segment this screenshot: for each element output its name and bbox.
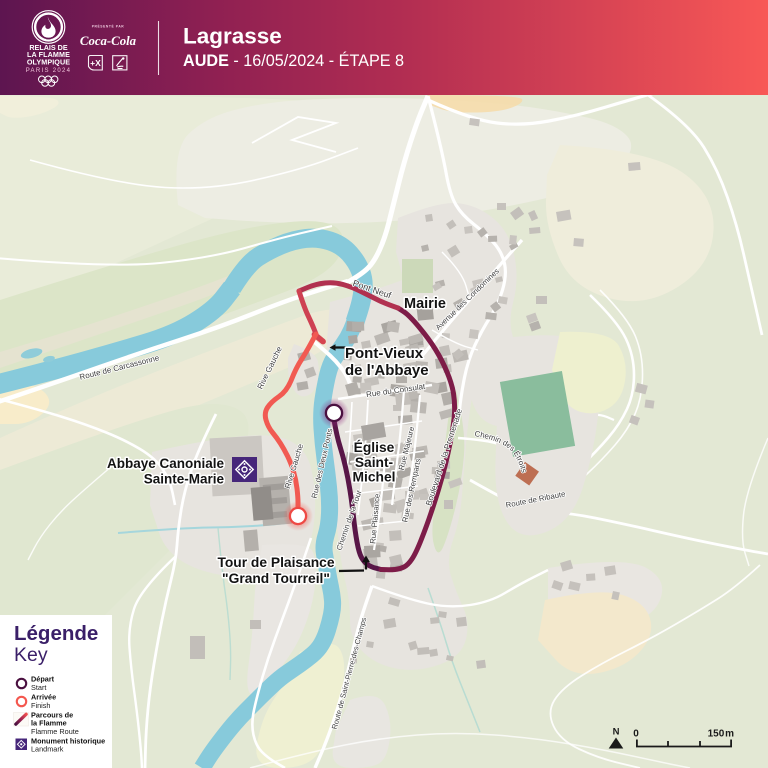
svg-text:0: 0: [633, 729, 639, 740]
svg-text:Mairie: Mairie: [404, 296, 446, 312]
svg-text:150 m: 150 m: [708, 729, 735, 740]
svg-text:+X: +X: [90, 58, 101, 68]
svg-text:PRÉSENTÉ PAR: PRÉSENTÉ PAR: [92, 24, 125, 29]
svg-text:PARIS 2024: PARIS 2024: [26, 68, 72, 74]
svg-text:ÉgliseSaint-Michel: ÉgliseSaint-Michel: [353, 439, 396, 485]
svg-text:Start: Start: [31, 683, 46, 692]
svg-text:AUDE - 16/05/2024 - ÉTAPE 8: AUDE - 16/05/2024 - ÉTAPE 8: [183, 51, 404, 70]
svg-text:Coca-Cola: Coca-Cola: [80, 34, 137, 48]
svg-text:Légende: Légende: [14, 622, 98, 645]
svg-text:Key: Key: [14, 644, 48, 666]
svg-text:N: N: [613, 727, 620, 738]
svg-text:Finish: Finish: [31, 701, 50, 710]
svg-text:Lagrasse: Lagrasse: [183, 24, 282, 49]
svg-text:Flamme Route: Flamme Route: [31, 727, 79, 736]
svg-text:Tour de Plaisance"Grand Tourre: Tour de Plaisance"Grand Tourreil": [217, 555, 334, 586]
svg-text:Pont-Vieuxde l'Abbaye: Pont-Vieuxde l'Abbaye: [345, 345, 429, 379]
svg-text:OLYMPIQUE: OLYMPIQUE: [27, 57, 70, 66]
svg-text:Landmark: Landmark: [31, 745, 64, 754]
